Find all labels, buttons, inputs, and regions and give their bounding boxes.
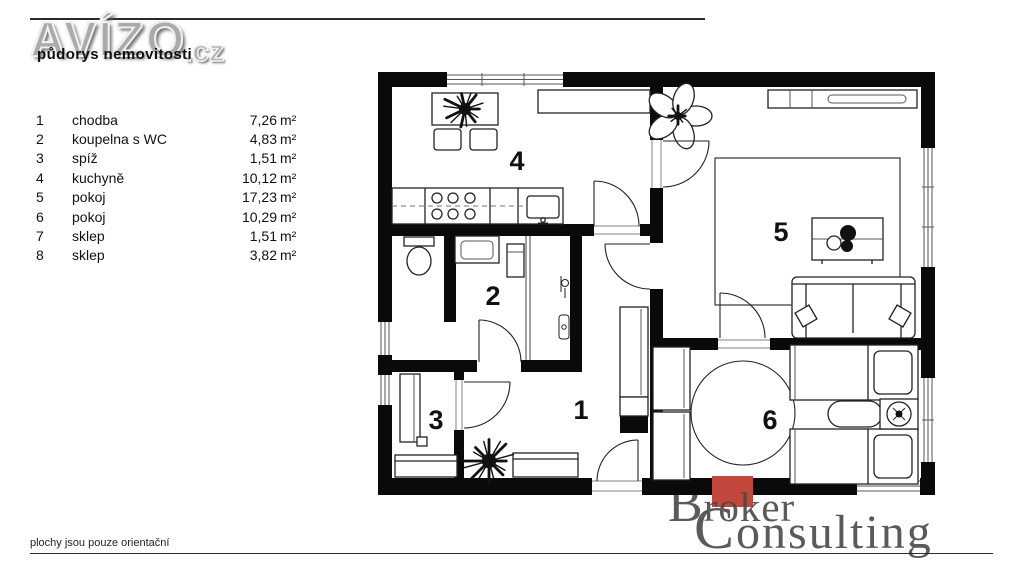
hall-bench [513,453,578,477]
kitchen-chair [434,129,461,150]
window-top [447,72,563,87]
washbasin-cabinet [455,236,499,263]
kitchen-chair [470,129,497,150]
room-label-5: 5 [773,217,788,247]
window-left-lower [378,375,392,405]
room6-wardrobe [653,412,690,480]
room-label-3: 3 [428,405,443,435]
room5-shelf [768,90,917,108]
coffee-table [812,218,883,264]
listing-canvas: AVÍZO.cz půdorys nemovitosti 1chodba7,26… [0,0,1024,576]
room-label-4: 4 [509,146,524,176]
disclaimer-text: plochy jsou pouze orientační [30,537,169,549]
bolster [828,401,882,427]
door-kitchen [594,181,639,226]
door-hall-room5 [605,244,650,289]
room-label-2: 2 [485,281,500,311]
shower-fixtures [559,276,569,339]
nightstand [880,399,918,429]
bed [790,429,918,484]
hall-plant [462,440,513,484]
door-bathroom [479,320,521,362]
sofa [792,277,915,338]
window-left-upper [378,322,392,355]
pantry-shelf [400,374,427,446]
washing-machine [507,244,524,277]
window-right-upper [921,148,935,267]
toilet [404,237,434,275]
round-rug [691,361,795,465]
bed [790,345,918,400]
room6-wardrobe [653,347,690,410]
kitchen-wall-cabinet [538,90,650,113]
shower-screen [526,236,530,360]
room-label-6: 6 [762,405,777,435]
kitchen-counter [392,188,563,224]
door-pantry [464,382,510,428]
room-label-1: 1 [573,395,588,425]
broker-consulting-line2: Consulting [694,498,933,558]
bottom-rule [30,553,993,554]
door-room5-room6 [720,293,765,338]
door-entrance [597,440,638,481]
hall-wardrobe [620,307,648,416]
window-right-lower [921,378,935,462]
pantry-bench [395,455,457,477]
floor-plan: 1 2 3 4 5 6 [0,0,1024,576]
